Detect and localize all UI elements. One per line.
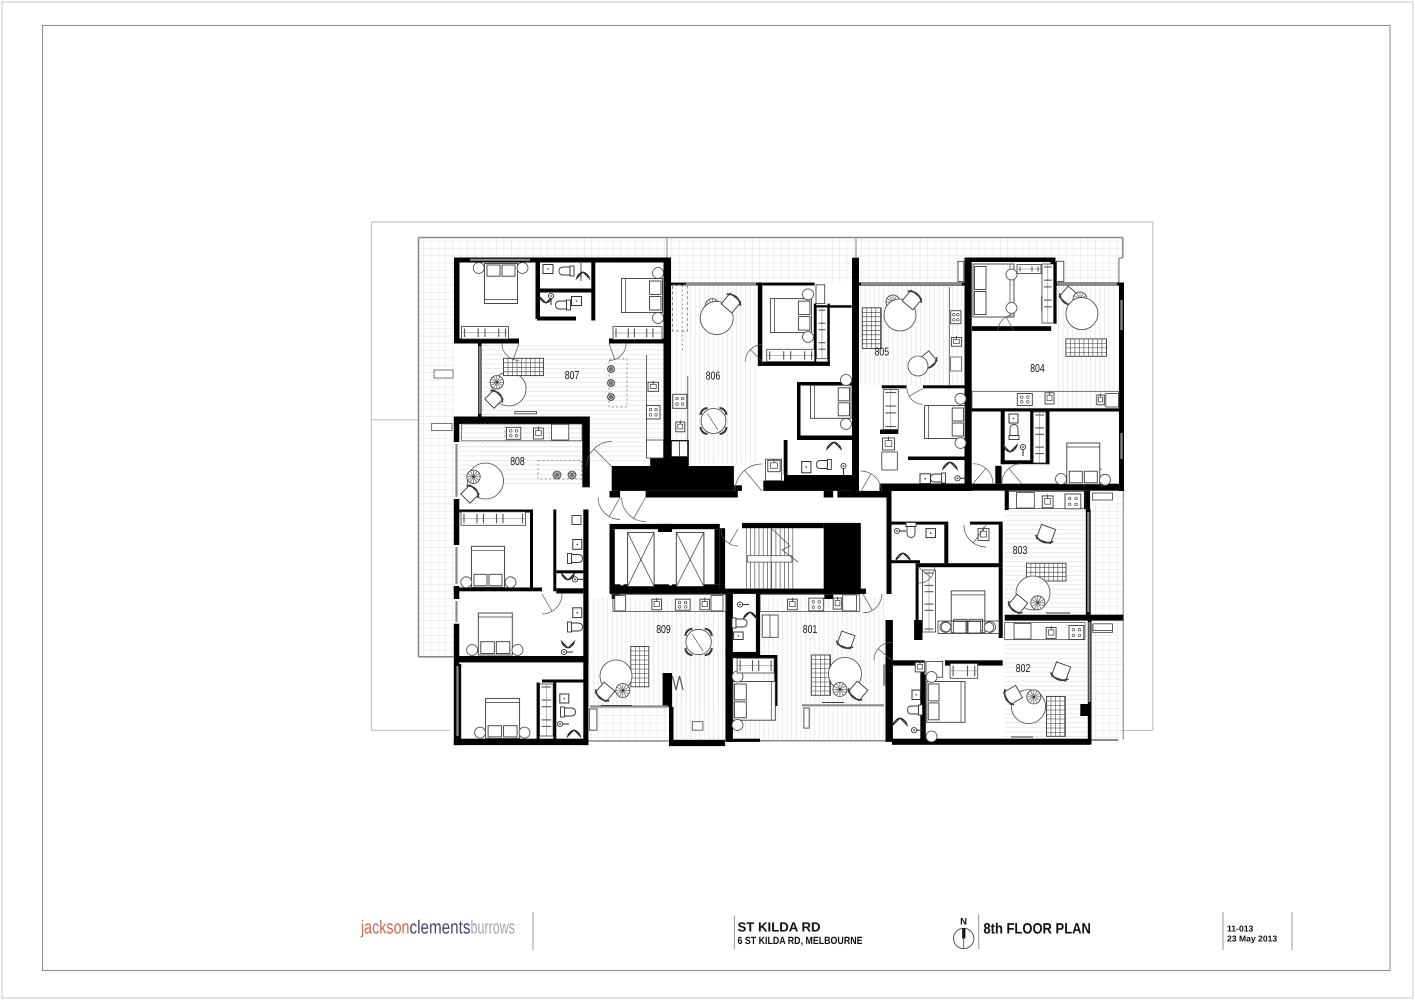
svg-text:807: 807 [565,370,580,382]
svg-text:806: 806 [706,371,721,383]
svg-text:11-013: 11-013 [1227,924,1254,934]
svg-text:8th FLOOR PLAN: 8th FLOOR PLAN [983,921,1091,938]
svg-text:ST KILDA RD: ST KILDA RD [738,920,821,935]
svg-text:6 ST KILDA RD, MELBOURNE: 6 ST KILDA RD, MELBOURNE [738,935,863,947]
svg-text:803: 803 [1013,545,1028,557]
svg-text:801: 801 [803,624,818,636]
svg-text:jacksonclementsburrows: jacksonclementsburrows [360,918,515,939]
svg-text:805: 805 [875,347,890,359]
svg-text:23 May 2013: 23 May 2013 [1227,934,1277,944]
svg-text:809: 809 [656,624,671,636]
svg-text:802: 802 [1016,663,1031,675]
svg-text:804: 804 [1030,363,1045,375]
svg-text:808: 808 [510,456,525,468]
svg-text:N: N [960,917,967,928]
